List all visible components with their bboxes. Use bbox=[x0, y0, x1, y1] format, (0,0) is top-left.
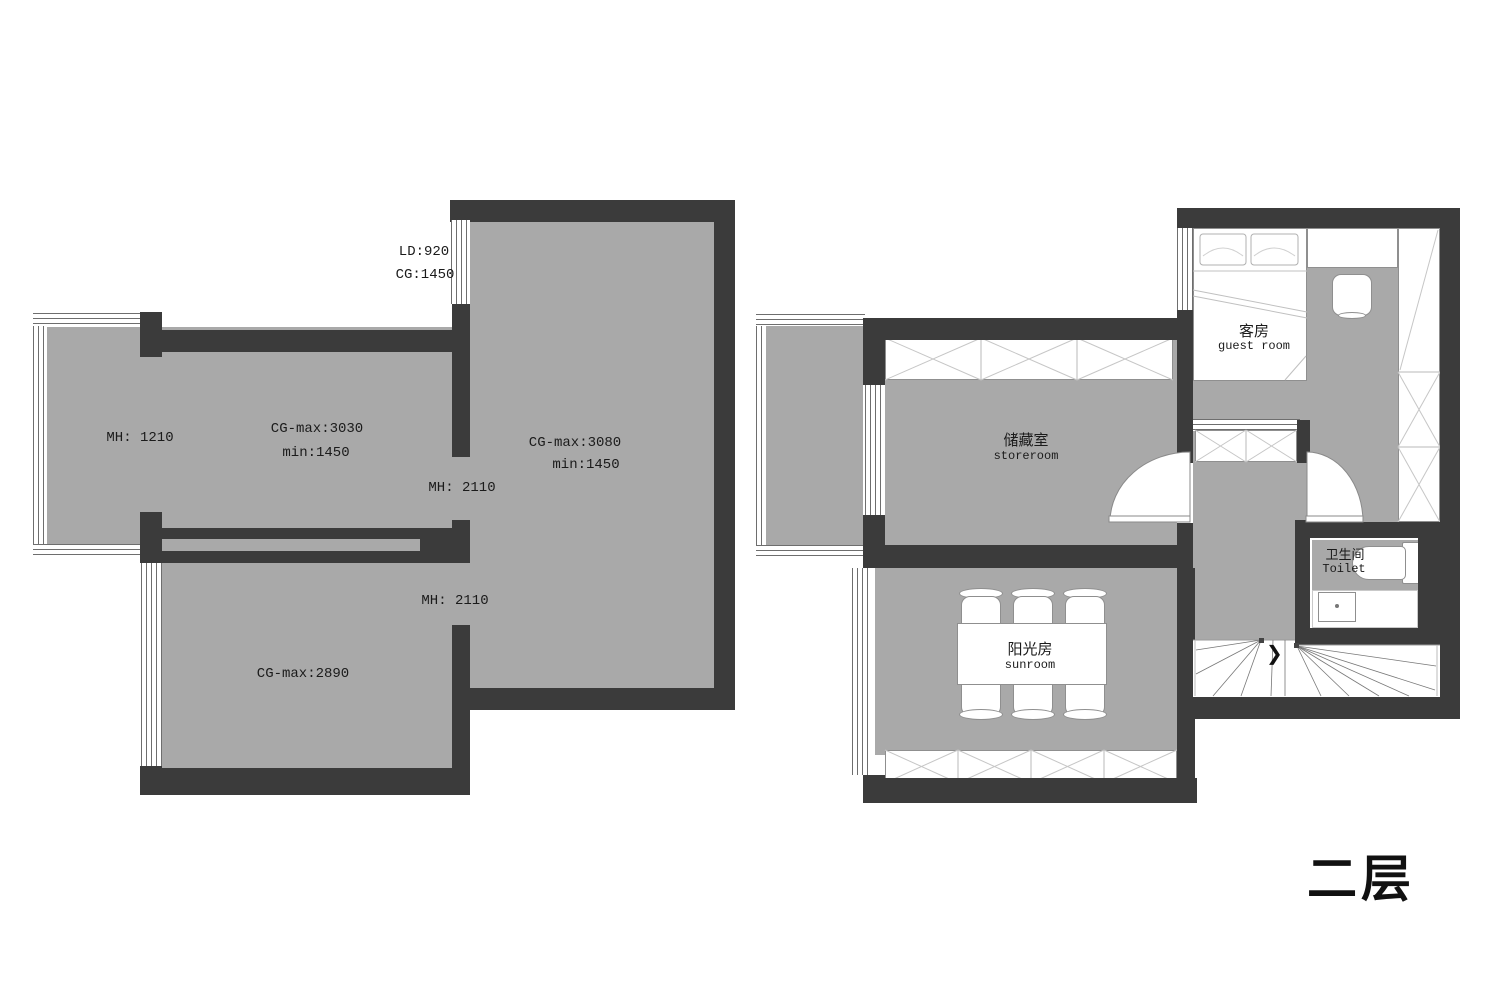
room-label-sunroom-zh: 阳光房 bbox=[1007, 642, 1052, 659]
window bbox=[852, 568, 870, 775]
balcony-frame-bottom bbox=[756, 545, 865, 557]
wall bbox=[1177, 310, 1193, 463]
faucet-icon bbox=[1335, 604, 1339, 608]
stool-base bbox=[1338, 312, 1366, 319]
wall bbox=[863, 318, 885, 385]
stairs bbox=[1193, 636, 1440, 698]
desk bbox=[1307, 228, 1398, 268]
wall bbox=[1190, 697, 1460, 719]
wall bbox=[863, 318, 1193, 340]
room-label-toilet-zh: 卫生间 bbox=[1325, 548, 1364, 562]
bed bbox=[1193, 228, 1307, 381]
wall bbox=[1295, 520, 1310, 645]
window bbox=[1177, 228, 1193, 310]
wall bbox=[863, 778, 1197, 803]
hall-cabinet bbox=[1195, 430, 1297, 462]
floor-plan-canvas: LD:920 CG:1450 MH: 1210 CG-max:3030 min:… bbox=[0, 0, 1500, 1000]
wall bbox=[1177, 208, 1460, 228]
floor-title: 二层 bbox=[1307, 852, 1415, 907]
wall bbox=[863, 545, 1177, 568]
door-arc-storeroom bbox=[1108, 448, 1192, 526]
door-arc-guest-room bbox=[1305, 448, 1367, 526]
balcony-frame-left bbox=[756, 314, 766, 557]
room-label-toilet-en: Toilet bbox=[1322, 563, 1365, 576]
window bbox=[865, 385, 883, 515]
wardrobe-guest-room bbox=[1398, 228, 1440, 522]
wall bbox=[1177, 523, 1193, 568]
dining-chair-cap bbox=[959, 709, 1003, 720]
right-plan: ❯ 储藏室 storeroom 阳光房 sunroom 客房 guest roo… bbox=[0, 0, 1500, 1000]
room-label-storeroom-en: storeroom bbox=[994, 450, 1059, 463]
room-label-guest-room-en: guest room bbox=[1218, 340, 1290, 353]
stair-direction-arrow-icon: ❯ bbox=[1266, 644, 1283, 664]
dining-chair-cap bbox=[1011, 709, 1055, 720]
dining-chair-cap bbox=[1063, 709, 1107, 720]
wardrobe-storeroom bbox=[885, 338, 1173, 380]
stool bbox=[1332, 274, 1372, 316]
floor-balcony bbox=[766, 326, 863, 550]
room-label-storeroom-zh: 储藏室 bbox=[1003, 433, 1048, 450]
wall bbox=[1418, 522, 1442, 645]
balcony-frame-top bbox=[756, 314, 865, 326]
room-label-sunroom-en: sunroom bbox=[1005, 659, 1055, 672]
